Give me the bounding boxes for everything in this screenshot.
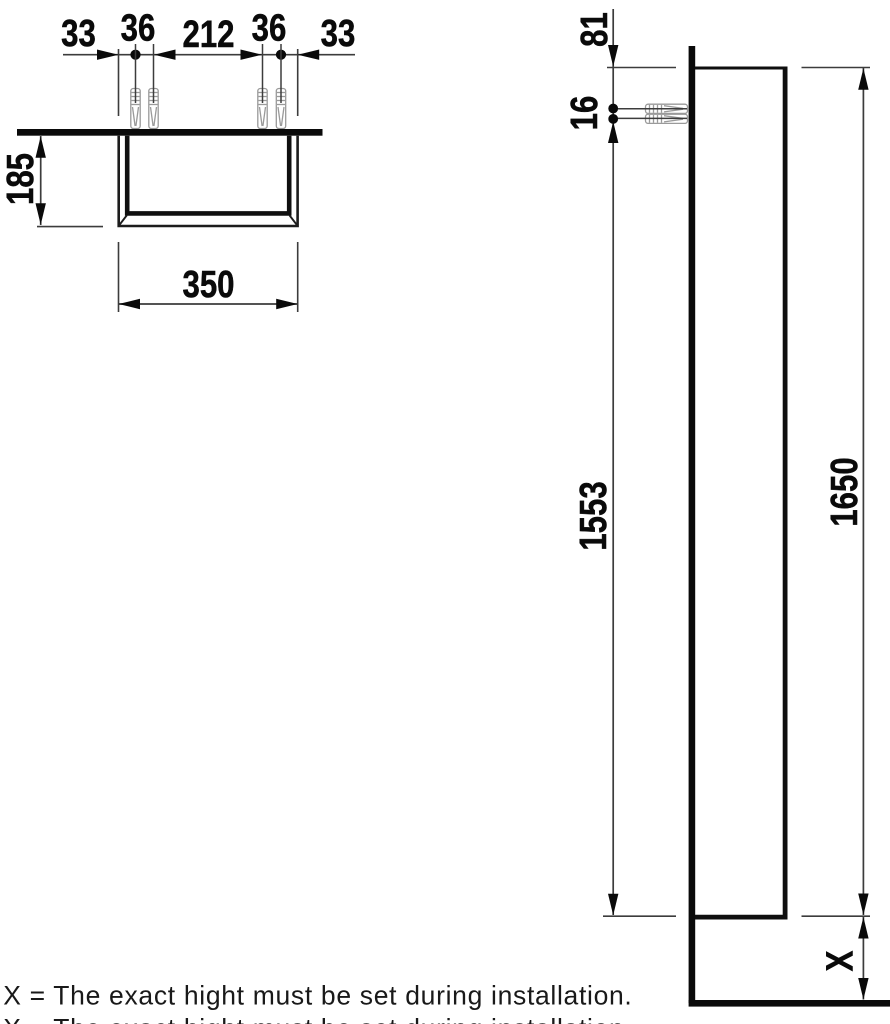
svg-text:X: X: [820, 951, 862, 972]
svg-text:81: 81: [574, 12, 616, 47]
svg-text:1650: 1650: [824, 457, 866, 526]
svg-text:36: 36: [252, 7, 287, 49]
svg-text:X = The exact hight must be se: X = The exact hight must be set during i…: [3, 981, 632, 1011]
svg-text:16: 16: [564, 96, 606, 131]
svg-text:36: 36: [121, 7, 156, 49]
svg-text:350: 350: [183, 264, 235, 306]
svg-text:1553: 1553: [573, 481, 615, 550]
svg-text:185: 185: [0, 153, 42, 205]
svg-text:33: 33: [321, 13, 356, 55]
svg-text:212: 212: [183, 14, 235, 56]
svg-text:X = The exact hight must be se: X = The exact hight must be set during i…: [3, 1014, 632, 1024]
svg-text:33: 33: [61, 13, 96, 55]
